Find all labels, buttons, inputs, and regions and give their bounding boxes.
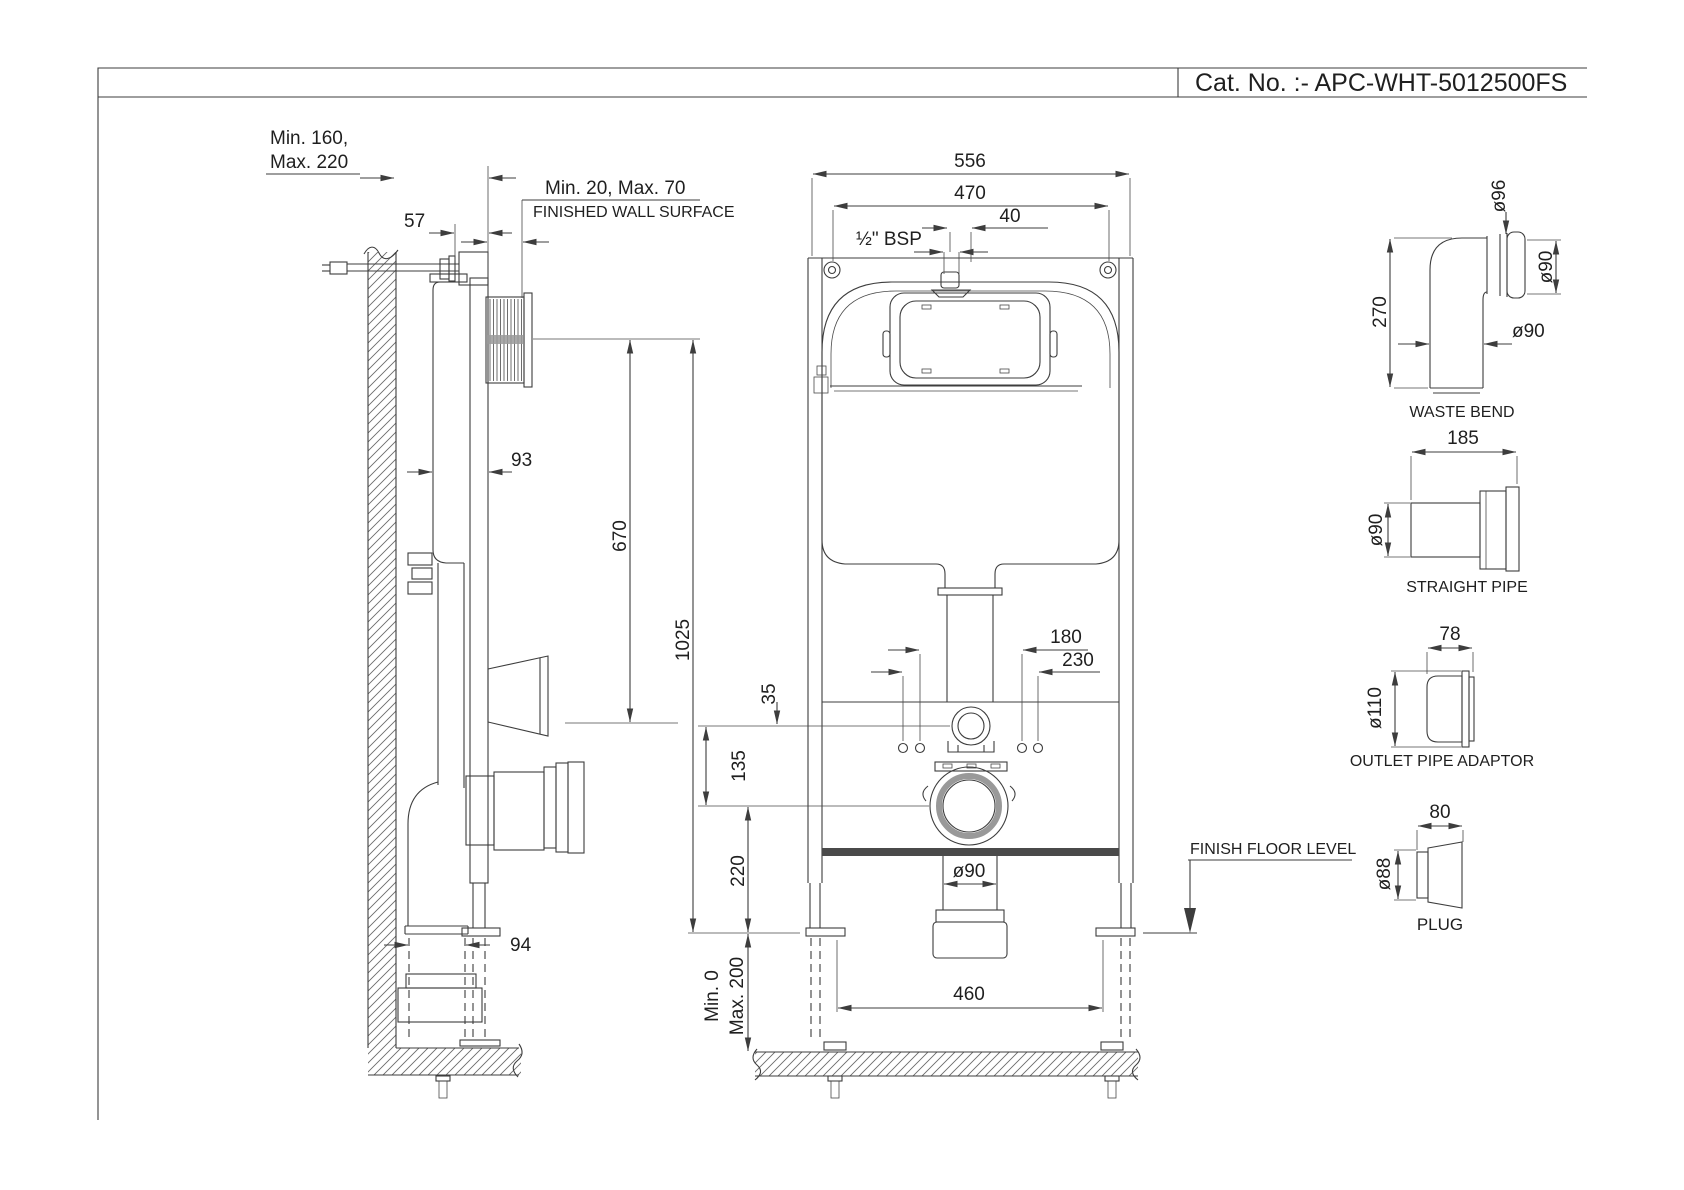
flush-cone-side (488, 656, 548, 736)
dim-cistern-depth: 93 (511, 450, 532, 471)
frame-front (808, 258, 1133, 883)
anchor-bolt-side (436, 1076, 450, 1098)
dim-wb-pipe-dia-bottom: ø90 (1512, 321, 1545, 342)
dim-wall-depth-1: Min. 160, (270, 128, 348, 149)
dim-fixing-span-inner: 180 (1050, 627, 1082, 648)
dim-outlet-pipe-dia: 94 (510, 935, 532, 956)
dim-hole-spacing: 470 (954, 183, 986, 204)
finish-floor-level: FINISH FLOOR LEVEL (1143, 841, 1356, 933)
dim-plate-to-outlet: 670 (610, 520, 631, 552)
accessory-straight-pipe: 185 ø90 STRAIGHT PIPE (1366, 428, 1528, 596)
accessory-waste-bend: ø96 270 ø90 ø90 WASTE BEND (1370, 180, 1561, 421)
mounting-plate (822, 702, 1119, 856)
front-view-dimensions: 556 470 40 ½" BSP 35 135 22 (698, 151, 1356, 1051)
finish-floor-level-label: FINISH FLOOR LEVEL (1190, 841, 1356, 858)
dim-sp-dia: ø90 (1366, 514, 1387, 547)
side-view: Min. 160, Max. 220 57 Min. 20, Max. 70 F… (266, 128, 800, 1098)
wc-connector-side (466, 762, 584, 853)
dim-floor-min: Min. 0 (702, 970, 723, 1022)
dim-opa-dia: ø110 (1365, 687, 1386, 729)
finished-wall-surface-label: FINISHED WALL SURFACE (533, 204, 735, 221)
dim-inlet-thread: ½" BSP (856, 229, 922, 250)
dim-wall-depth-2: Max. 220 (270, 152, 348, 173)
dim-flush-to-waste: 135 (729, 750, 750, 782)
dim-wb-pipe-dia-side: ø90 (1536, 251, 1557, 284)
dim-panel-depth: Min. 20, Max. 70 (545, 178, 685, 199)
dim-floor-max: Max. 200 (727, 957, 748, 1035)
dim-bracket-offset: 57 (404, 211, 425, 232)
dim-inlet-offset: 40 (999, 206, 1020, 227)
accessory-outlet-pipe-adaptor: 78 ø110 OUTLET PIPE ADAPTOR (1350, 624, 1534, 770)
dim-frame-height: 1025 (673, 619, 694, 661)
dim-sp-length: 185 (1447, 428, 1479, 449)
support-box (398, 974, 482, 1022)
dim-fixing-span-outer: 230 (1062, 650, 1094, 671)
waste-bend-label: WASTE BEND (1409, 404, 1514, 421)
drawing-sheet: Cat. No. :- APC-WHT-5012500FS (0, 0, 1684, 1190)
wall-bracket (322, 252, 488, 285)
floor-section-side (368, 1044, 522, 1077)
dim-waste-to-base: 220 (728, 855, 749, 887)
side-view-dimensions: Min. 160, Max. 220 57 Min. 20, Max. 70 F… (266, 128, 800, 956)
straight-pipe-label: STRAIGHT PIPE (1406, 579, 1528, 596)
catalog-number: Cat. No. :- APC-WHT-5012500FS (1195, 69, 1567, 97)
anchor-bolt-right (1105, 1076, 1119, 1098)
dim-wb-height: 270 (1370, 296, 1391, 328)
access-window (883, 293, 1057, 385)
anchor-bolt-left (828, 1076, 842, 1098)
page-border (98, 68, 1587, 1120)
dim-plug-dia: ø88 (1374, 858, 1395, 891)
flush-plate-shaft (486, 293, 532, 387)
plug-label: PLUG (1417, 915, 1463, 934)
dim-opa-length: 78 (1439, 624, 1460, 645)
outlet-pipe-adaptor-label: OUTLET PIPE ADAPTOR (1350, 753, 1534, 770)
dim-outlet-dia: ø90 (953, 861, 986, 882)
overflow-clip (814, 366, 828, 393)
waste-outlet-hole (923, 767, 1015, 845)
cistern-side-profile (408, 274, 467, 788)
floor-section-front (753, 1049, 1140, 1080)
frame-rail-side (460, 278, 500, 1046)
title-block: Cat. No. :- APC-WHT-5012500FS (1195, 69, 1567, 97)
dim-wb-socket-dia: ø96 (1489, 180, 1510, 213)
front-view: 556 470 40 ½" BSP 35 135 22 (698, 151, 1356, 1098)
dim-frame-width: 556 (954, 151, 986, 172)
dim-plate-to-flush: 35 (759, 683, 780, 704)
dim-foot-spacing: 460 (953, 984, 985, 1005)
dim-plug-length: 80 (1429, 802, 1450, 823)
wall-section (364, 247, 398, 1048)
accessory-plug: 80 ø88 PLUG (1374, 802, 1463, 934)
